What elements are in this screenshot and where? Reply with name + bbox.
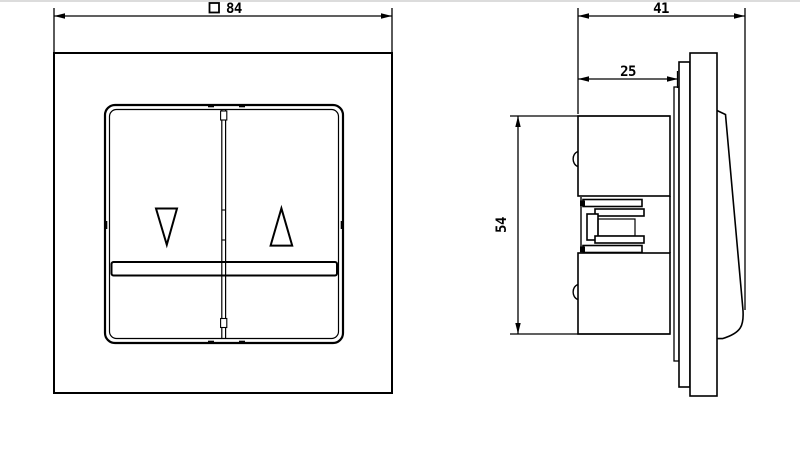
claw-knob-upper bbox=[580, 201, 585, 207]
front-width-dimension: 84 bbox=[54, 1, 392, 53]
side-view: 41 25 54 bbox=[494, 1, 745, 396]
divider-top-tab bbox=[221, 111, 227, 120]
rocker-frame-outer bbox=[105, 105, 343, 343]
claw-inner-detail bbox=[598, 219, 635, 236]
claw-knob-lower bbox=[580, 247, 585, 253]
arrowhead-bottom bbox=[515, 323, 520, 334]
claw-band-2 bbox=[595, 209, 644, 216]
claw-band-4 bbox=[583, 246, 642, 253]
arrowhead-top bbox=[515, 116, 520, 127]
cover-frame-middle bbox=[679, 62, 690, 387]
claw-band-3 bbox=[595, 236, 644, 243]
side-insert-depth-dimension: 25 bbox=[578, 64, 678, 88]
drawing-canvas: 84 bbox=[0, 0, 800, 468]
rocker-profile bbox=[717, 111, 743, 339]
divider-bottom-tab bbox=[221, 319, 227, 328]
arrowhead-left bbox=[578, 13, 589, 18]
arrowhead-right bbox=[381, 13, 392, 18]
insert-depth-label: 25 bbox=[620, 64, 636, 80]
front-view: 84 bbox=[54, 1, 392, 393]
indicator-bar bbox=[112, 262, 338, 276]
mechanism-lower-box bbox=[578, 253, 670, 334]
claw-band-1 bbox=[583, 200, 642, 207]
claw-clamp-detail bbox=[580, 197, 644, 253]
total-depth-label: 41 bbox=[653, 1, 669, 17]
arrowhead-right bbox=[667, 76, 678, 81]
front-width-label: 84 bbox=[226, 1, 242, 17]
technical-drawing: 84 bbox=[0, 0, 800, 468]
arrowhead-left bbox=[54, 13, 65, 18]
mechanism-upper-box bbox=[578, 116, 670, 196]
cover-frame-outer bbox=[690, 53, 717, 396]
arrowhead-right bbox=[734, 13, 745, 18]
square-symbol-icon bbox=[210, 3, 220, 13]
height-label: 54 bbox=[494, 217, 510, 233]
arrowhead-left bbox=[578, 76, 589, 81]
